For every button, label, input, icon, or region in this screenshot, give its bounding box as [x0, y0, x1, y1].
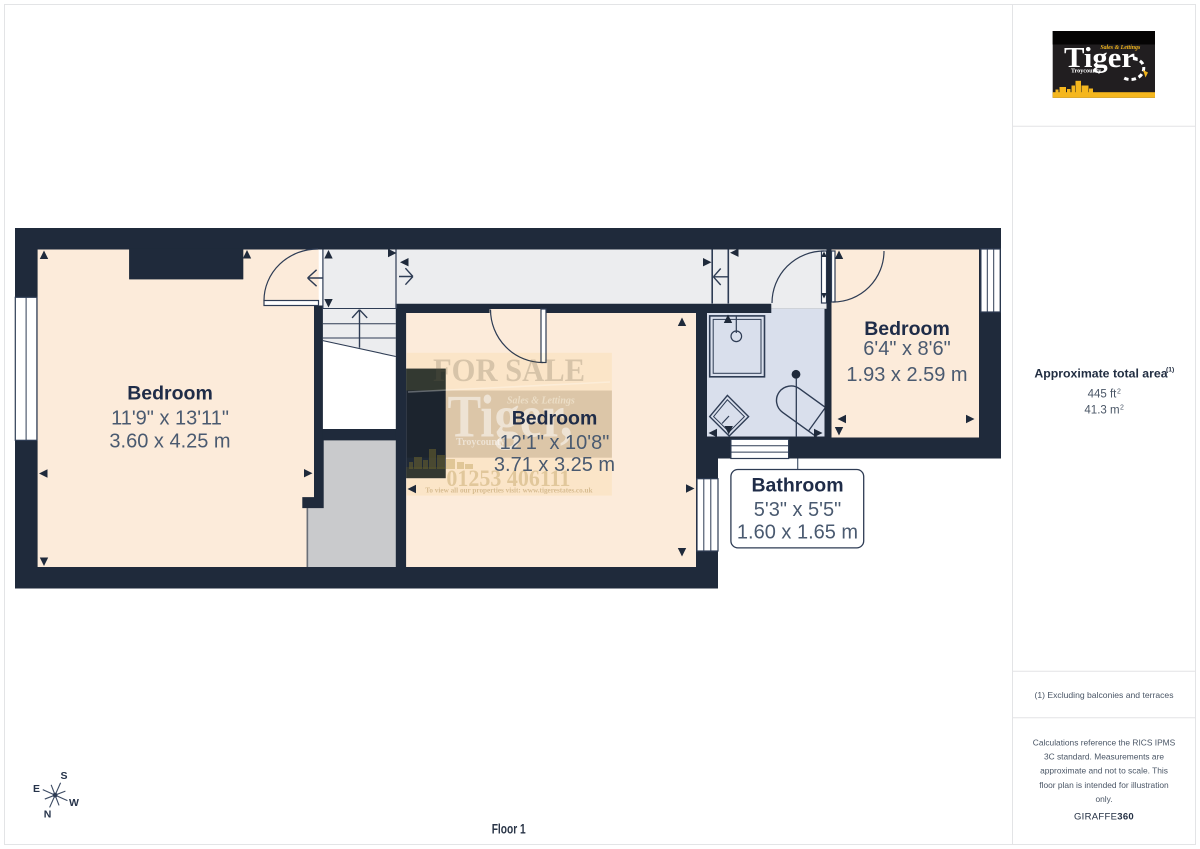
svg-text:(1) Excluding balconies and te: (1) Excluding balconies and terraces — [1034, 690, 1173, 700]
svg-text:2: 2 — [1120, 405, 1124, 412]
svg-text:1.60 x 1.65 m: 1.60 x 1.65 m — [737, 521, 858, 543]
svg-text:11'9" x 13'11": 11'9" x 13'11" — [111, 408, 229, 430]
svg-text:Floor 1: Floor 1 — [492, 822, 526, 837]
svg-text:1.93 x 2.59 m: 1.93 x 2.59 m — [846, 364, 967, 386]
svg-text:Bedroom: Bedroom — [864, 318, 950, 340]
svg-text:(1): (1) — [1166, 367, 1174, 374]
svg-text:Approximate total area: Approximate total area — [1034, 367, 1167, 381]
svg-text:S: S — [60, 770, 67, 782]
svg-text:3.60 x 4.25 m: 3.60 x 4.25 m — [109, 431, 230, 453]
svg-text:Troycounty: Troycounty — [1071, 68, 1102, 75]
svg-text:Bathroom: Bathroom — [751, 475, 843, 497]
svg-text:To view all our properties vis: To view all our properties visit: www.ti… — [425, 486, 592, 494]
svg-text:5'3" x 5'5": 5'3" x 5'5" — [754, 499, 841, 521]
svg-text:GIRAFFE360: GIRAFFE360 — [1074, 812, 1134, 823]
svg-text:floor plan is intended for ill: floor plan is intended for illustration — [1039, 780, 1169, 790]
svg-text:3.71 x 3.25 m: 3.71 x 3.25 m — [494, 454, 615, 476]
svg-text:Bedroom: Bedroom — [512, 408, 598, 430]
svg-text:Troycounty: Troycounty — [456, 437, 505, 448]
svg-text:445 ft: 445 ft — [1088, 389, 1118, 401]
svg-text:E: E — [33, 783, 40, 795]
svg-text:Sales & Lettings: Sales & Lettings — [507, 395, 575, 406]
svg-text:3C standard. Measurements are: 3C standard. Measurements are — [1044, 752, 1164, 762]
svg-text:41.3 m: 41.3 m — [1084, 405, 1119, 417]
svg-text:2: 2 — [1117, 389, 1121, 396]
svg-text:W: W — [69, 797, 79, 809]
svg-text:6'4" x 8'6": 6'4" x 8'6" — [863, 338, 950, 360]
svg-text:12'1" x 10'8": 12'1" x 10'8" — [500, 432, 610, 454]
svg-text:N: N — [44, 809, 52, 821]
svg-text:Bedroom: Bedroom — [127, 383, 213, 405]
svg-text:Calculations reference the RIC: Calculations reference the RICS IPMS — [1033, 738, 1176, 748]
svg-text:approximate and not to scale.: approximate and not to scale. This — [1040, 766, 1168, 776]
svg-text:only.: only. — [1095, 794, 1112, 804]
